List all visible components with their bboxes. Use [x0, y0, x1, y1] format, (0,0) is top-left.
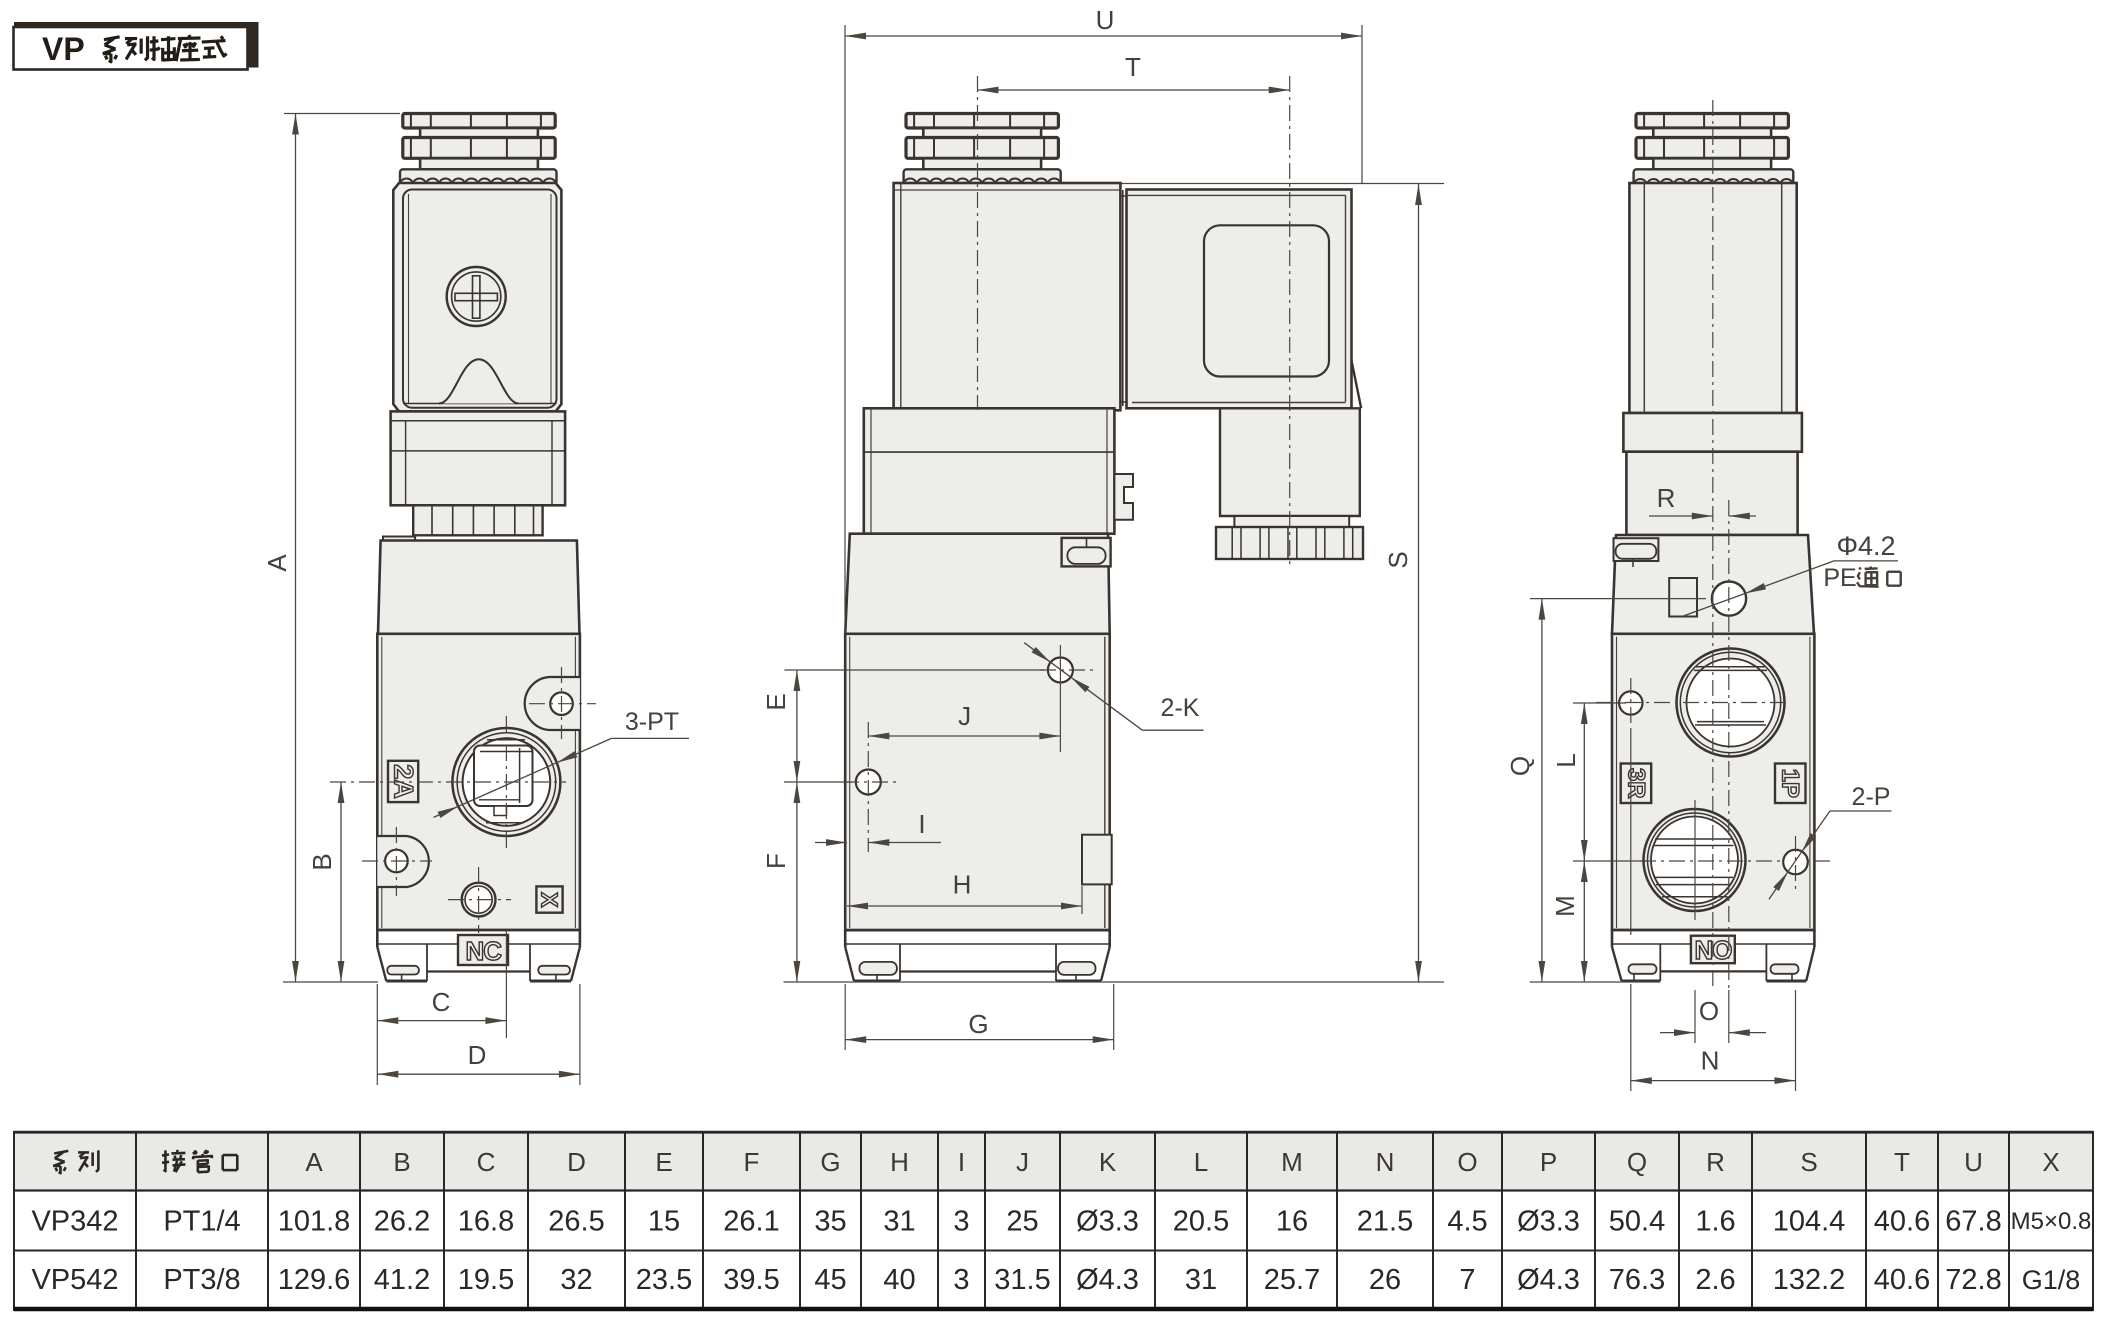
- svg-text:B: B: [393, 1147, 410, 1177]
- svg-text:VP542: VP542: [31, 1264, 118, 1296]
- svg-text:7: 7: [1459, 1264, 1475, 1296]
- svg-text:101.8: 101.8: [278, 1206, 351, 1238]
- svg-text:E: E: [655, 1147, 672, 1177]
- svg-text:40.6: 40.6: [1874, 1206, 1930, 1238]
- svg-text:X: X: [2042, 1147, 2059, 1177]
- svg-text:20.5: 20.5: [1173, 1206, 1229, 1238]
- svg-text:19.5: 19.5: [458, 1264, 514, 1296]
- svg-text:50.4: 50.4: [1609, 1206, 1665, 1238]
- svg-text:4.5: 4.5: [1447, 1206, 1487, 1238]
- svg-text:O: O: [1699, 996, 1719, 1026]
- svg-text:40: 40: [883, 1264, 915, 1296]
- svg-text:H: H: [953, 870, 972, 900]
- svg-text:3R: 3R: [1622, 768, 1649, 799]
- svg-text:M5×0.8: M5×0.8: [2011, 1208, 2092, 1235]
- svg-text:26.2: 26.2: [374, 1206, 430, 1238]
- svg-text:PE: PE: [1823, 564, 1856, 592]
- svg-text:16.8: 16.8: [458, 1206, 514, 1238]
- svg-text:E: E: [761, 693, 791, 710]
- svg-text:B: B: [307, 853, 337, 870]
- svg-text:F: F: [744, 1147, 760, 1177]
- svg-text:VP: VP: [42, 31, 85, 67]
- svg-text:D: D: [567, 1147, 586, 1177]
- svg-text:S: S: [1383, 551, 1413, 568]
- svg-text:25.7: 25.7: [1264, 1264, 1320, 1296]
- svg-text:32: 32: [560, 1264, 592, 1296]
- svg-text:3: 3: [953, 1206, 969, 1238]
- svg-text:1.6: 1.6: [1695, 1206, 1735, 1238]
- svg-text:3-PT: 3-PT: [625, 708, 679, 736]
- svg-text:Ø4.3: Ø4.3: [1076, 1264, 1139, 1296]
- svg-text:I: I: [958, 1147, 965, 1177]
- svg-text:Ø4.3: Ø4.3: [1517, 1264, 1580, 1296]
- svg-text:45: 45: [814, 1264, 846, 1296]
- svg-text:P: P: [1540, 1147, 1557, 1177]
- svg-text:T: T: [1894, 1147, 1910, 1177]
- svg-text:26.5: 26.5: [548, 1206, 604, 1238]
- svg-text:23.5: 23.5: [636, 1264, 692, 1296]
- svg-text:G: G: [820, 1147, 840, 1177]
- svg-text:C: C: [432, 987, 451, 1017]
- svg-text:G1/8: G1/8: [2022, 1265, 2081, 1295]
- svg-text:S: S: [1800, 1147, 1817, 1177]
- svg-text:Q: Q: [1627, 1147, 1647, 1177]
- svg-text:K: K: [1099, 1147, 1117, 1177]
- svg-text:VP342: VP342: [31, 1206, 118, 1238]
- svg-text:1P: 1P: [1777, 769, 1804, 798]
- svg-text:C: C: [477, 1147, 496, 1177]
- svg-text:16: 16: [1276, 1206, 1308, 1238]
- svg-text:M: M: [1281, 1147, 1303, 1177]
- svg-text:T: T: [1125, 52, 1141, 82]
- svg-text:R: R: [1706, 1147, 1725, 1177]
- svg-text:U: U: [1964, 1147, 1983, 1177]
- svg-text:H: H: [890, 1147, 909, 1177]
- svg-text:3: 3: [953, 1264, 969, 1296]
- svg-text:N: N: [1701, 1046, 1720, 1076]
- svg-text:31: 31: [883, 1206, 915, 1238]
- svg-text:35: 35: [814, 1206, 846, 1238]
- svg-text:A: A: [262, 554, 292, 572]
- svg-text:U: U: [1096, 5, 1115, 35]
- svg-text:M: M: [1550, 895, 1580, 917]
- svg-text:25: 25: [1006, 1206, 1038, 1238]
- svg-text:41.2: 41.2: [374, 1264, 430, 1296]
- svg-text:R: R: [1657, 483, 1676, 513]
- svg-text:Q: Q: [1505, 756, 1535, 776]
- svg-text:104.4: 104.4: [1773, 1206, 1846, 1238]
- svg-text:129.6: 129.6: [278, 1264, 351, 1296]
- svg-text:I: I: [918, 809, 925, 839]
- svg-text:132.2: 132.2: [1773, 1264, 1846, 1296]
- svg-text:G: G: [968, 1009, 988, 1039]
- svg-text:26: 26: [1369, 1264, 1401, 1296]
- svg-text:Φ4.2: Φ4.2: [1836, 531, 1895, 561]
- svg-text:72.8: 72.8: [1945, 1264, 2001, 1296]
- svg-text:Ø3.3: Ø3.3: [1076, 1206, 1139, 1238]
- svg-text:39.5: 39.5: [723, 1264, 779, 1296]
- svg-text:Ø3.3: Ø3.3: [1517, 1206, 1580, 1238]
- svg-text:X: X: [537, 892, 563, 908]
- svg-text:J: J: [1016, 1147, 1029, 1177]
- svg-text:L: L: [1551, 753, 1581, 767]
- svg-text:67.8: 67.8: [1945, 1206, 2001, 1238]
- svg-text:O: O: [1457, 1147, 1477, 1177]
- svg-text:76.3: 76.3: [1609, 1264, 1665, 1296]
- svg-text:21.5: 21.5: [1357, 1206, 1413, 1238]
- svg-text:31: 31: [1185, 1264, 1217, 1296]
- svg-text:PT1/4: PT1/4: [163, 1206, 240, 1238]
- svg-text:J: J: [958, 701, 971, 731]
- svg-text:PT3/8: PT3/8: [163, 1264, 240, 1296]
- svg-text:2-P: 2-P: [1852, 783, 1891, 811]
- svg-text:2.6: 2.6: [1695, 1264, 1735, 1296]
- svg-text:L: L: [1194, 1147, 1208, 1177]
- svg-text:NC: NC: [466, 936, 503, 966]
- svg-text:26.1: 26.1: [723, 1206, 779, 1238]
- svg-text:N: N: [1376, 1147, 1395, 1177]
- svg-text:D: D: [468, 1040, 487, 1070]
- svg-text:A: A: [305, 1147, 323, 1177]
- svg-text:F: F: [761, 853, 791, 869]
- svg-text:2-K: 2-K: [1161, 694, 1200, 722]
- svg-text:40.6: 40.6: [1874, 1264, 1930, 1296]
- svg-text:31.5: 31.5: [994, 1264, 1050, 1296]
- svg-text:15: 15: [648, 1206, 680, 1238]
